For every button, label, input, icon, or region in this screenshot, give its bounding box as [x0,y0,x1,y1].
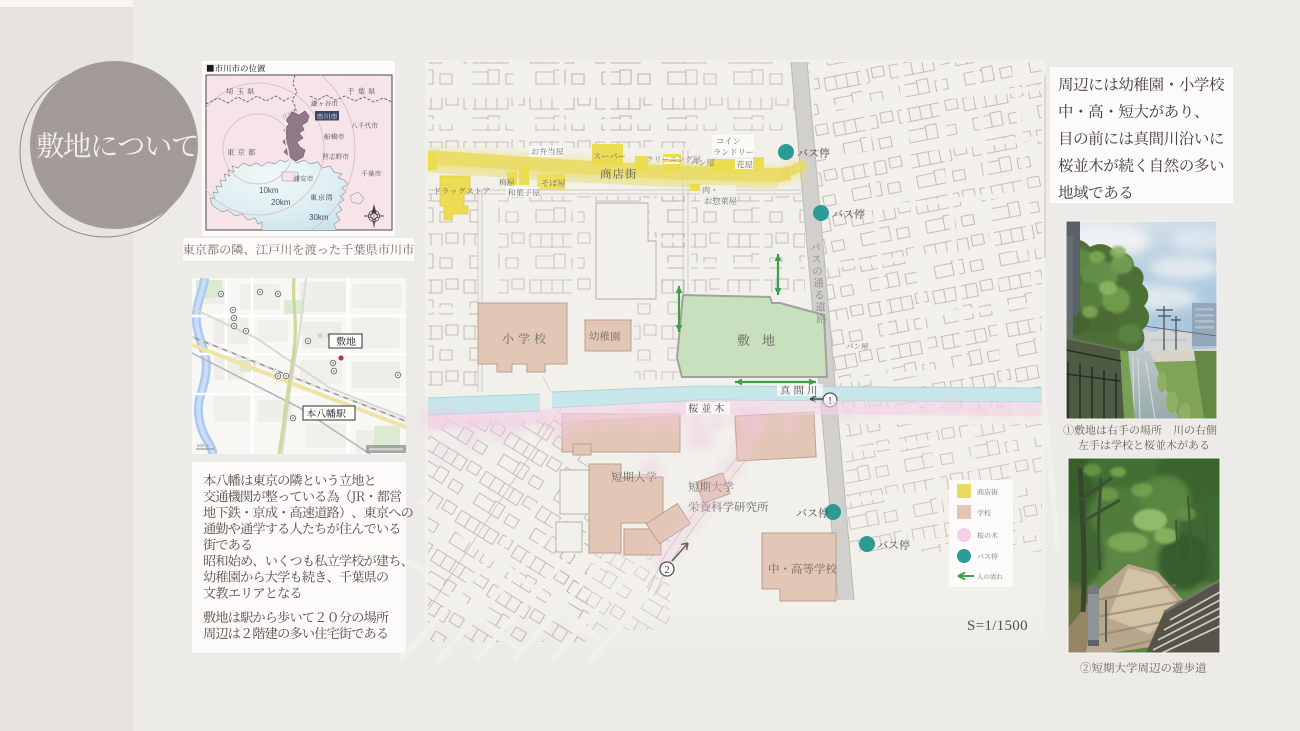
svg-text:2: 2 [664,565,669,576]
svg-text:10km: 10km [259,186,279,195]
svg-text:30km: 30km [309,213,329,222]
svg-text:S=1/1500: S=1/1500 [967,618,1028,634]
svg-text:20km: 20km [271,198,291,207]
svg-text:500 m: 500 m [197,443,210,448]
